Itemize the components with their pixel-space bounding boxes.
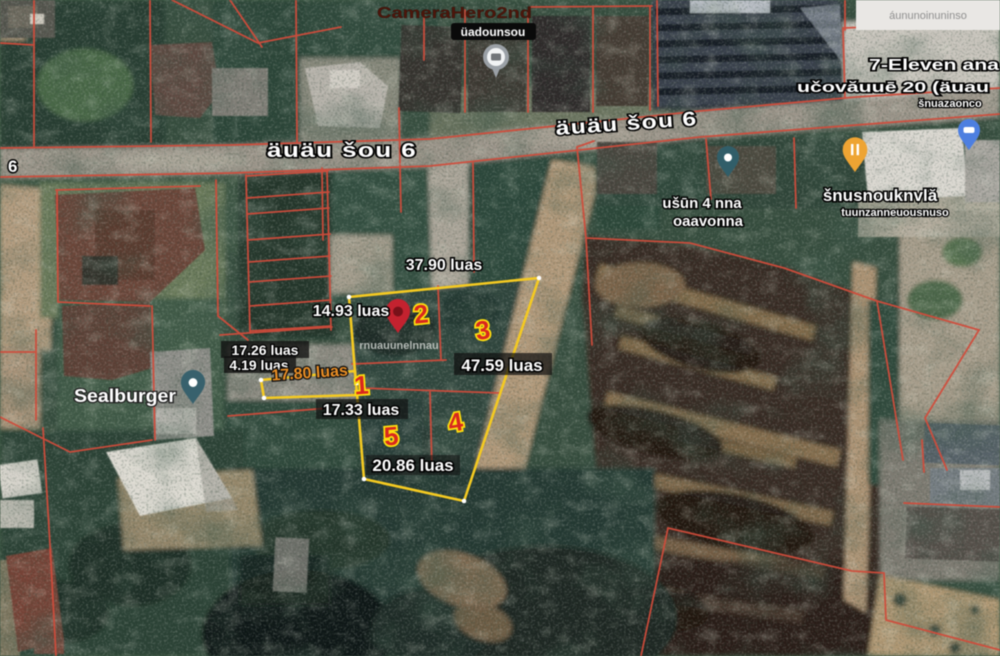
svg-text:17.33 luas: 17.33 luas <box>323 402 400 419</box>
svg-text:oaavonna: oaavonna <box>673 213 744 230</box>
svg-text:áununoinuninso: áununoinuninso <box>889 10 967 22</box>
svg-text:tuunzanneuousnuso: tuunzanneuousnuso <box>841 207 949 219</box>
svg-text:17.26 luas: 17.26 luas <box>232 342 299 358</box>
svg-text:äuäu šou 6: äuäu šou 6 <box>267 140 417 162</box>
svg-text:šnusnouknvlă: šnusnouknvlă <box>823 186 938 205</box>
svg-text:47.59 luas: 47.59 luas <box>461 356 542 375</box>
svg-text:20.86 luas: 20.86 luas <box>372 456 453 475</box>
svg-text:šnuazaonco: šnuazaonco <box>918 98 982 110</box>
svg-text:37.90 luas: 37.90 luas <box>406 257 483 274</box>
svg-text:5: 5 <box>383 420 400 451</box>
svg-text:CameraHero2nd: CameraHero2nd <box>377 5 532 22</box>
svg-text:ušūn 4 nna: ušūn 4 nna <box>662 195 742 212</box>
svg-text:rnuauunelnnau: rnuauunelnnau <box>359 340 438 352</box>
svg-text:üadounsou: üadounsou <box>461 25 526 39</box>
svg-text:6: 6 <box>8 157 17 176</box>
svg-text:14.93 luas: 14.93 luas <box>313 303 390 320</box>
svg-text:1: 1 <box>353 370 370 401</box>
svg-text:učovăuuē 20 (äuau: učovăuuē 20 (äuau <box>797 79 989 96</box>
svg-text:Sealburger: Sealburger <box>74 386 176 406</box>
svg-text:7-Eleven ana: 7-Eleven ana <box>869 57 999 74</box>
